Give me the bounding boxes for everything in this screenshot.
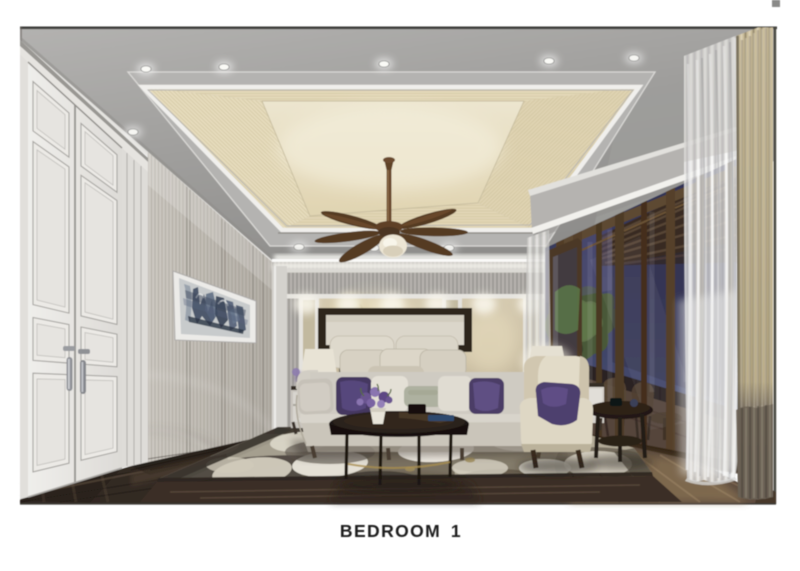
svg-text:BEDROOM 1: BEDROOM 1 [340,521,462,541]
